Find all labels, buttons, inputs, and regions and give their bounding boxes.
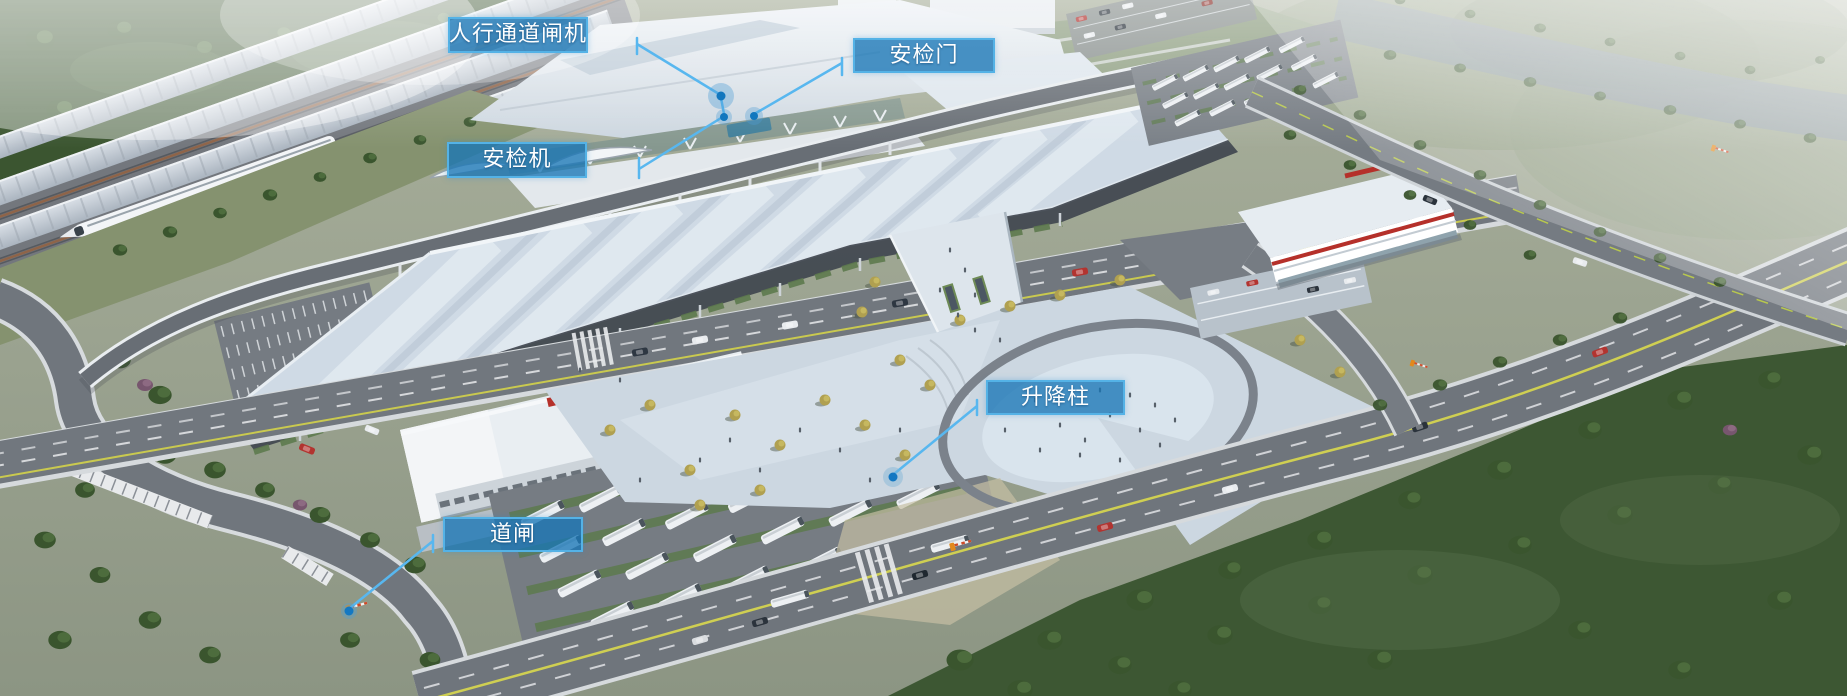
callout-label: 安检机 (482, 149, 551, 171)
callout-label: 道闸 (490, 524, 536, 546)
callout-pedestrian-channel-gate[interactable]: 人行通道闸机 (448, 17, 588, 53)
annotated-station-rendering: 人行通道闸机 安检门 安检机 升降柱 道闸 (0, 0, 1847, 696)
callout-barrier-gate[interactable]: 道闸 (443, 517, 583, 552)
callout-label: 人行通道闸机 (449, 24, 587, 46)
scene-rendering (0, 0, 1847, 696)
callout-label: 安检门 (889, 45, 958, 67)
callout-security-scanner[interactable]: 安检机 (447, 142, 587, 178)
callout-security-door[interactable]: 安检门 (853, 38, 995, 73)
callout-lifting-bollard[interactable]: 升降柱 (986, 380, 1125, 415)
callout-label: 升降柱 (1021, 387, 1090, 409)
